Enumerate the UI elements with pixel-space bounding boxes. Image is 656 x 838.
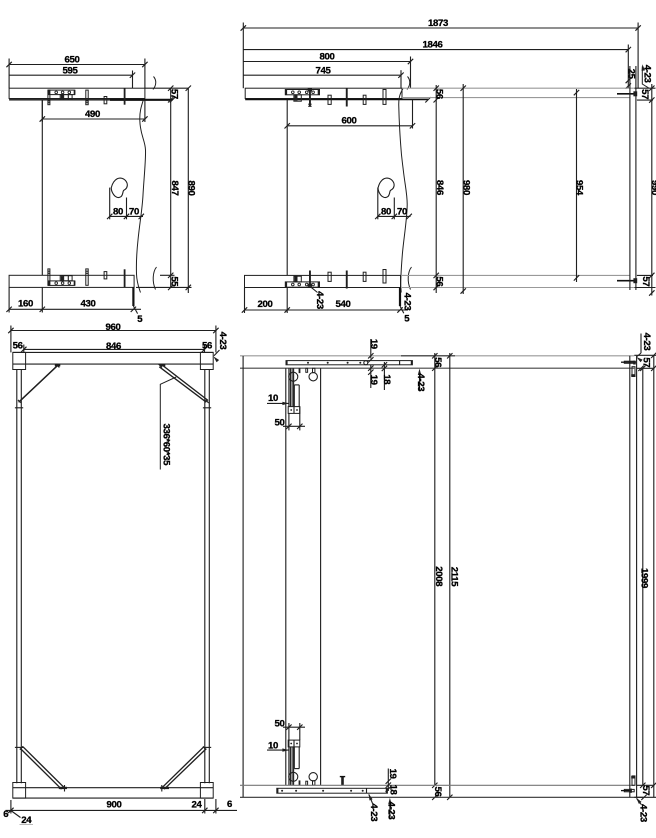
svg-text:25: 25 [626, 69, 637, 80]
svg-text:847: 847 [169, 181, 180, 196]
svg-text:430: 430 [81, 298, 96, 309]
svg-text:2115: 2115 [448, 567, 459, 587]
svg-text:57: 57 [639, 89, 650, 99]
svg-text:50: 50 [275, 719, 285, 730]
svg-text:160: 160 [18, 298, 33, 309]
svg-text:4-23: 4-23 [368, 803, 379, 821]
svg-text:19: 19 [368, 339, 379, 349]
svg-text:57: 57 [168, 89, 179, 99]
svg-text:6: 6 [227, 799, 232, 810]
svg-text:56: 56 [13, 341, 23, 352]
svg-text:846: 846 [106, 341, 121, 352]
svg-text:70: 70 [397, 207, 407, 218]
svg-text:4-23: 4-23 [641, 333, 652, 351]
svg-text:56: 56 [202, 341, 212, 352]
svg-text:18: 18 [388, 785, 399, 796]
svg-text:19: 19 [368, 375, 379, 385]
svg-text:990: 990 [649, 180, 656, 195]
svg-text:19: 19 [387, 769, 398, 779]
svg-text:490: 490 [85, 109, 100, 120]
svg-text:600: 600 [342, 116, 357, 127]
svg-text:540: 540 [336, 299, 351, 310]
svg-text:70: 70 [129, 207, 139, 218]
svg-text:890: 890 [186, 181, 197, 196]
svg-text:4-23: 4-23 [641, 65, 652, 83]
svg-text:954: 954 [574, 180, 585, 196]
svg-text:56: 56 [432, 357, 443, 367]
svg-text:336*60*35: 336*60*35 [161, 423, 172, 466]
svg-text:57: 57 [640, 357, 651, 367]
svg-text:4-23: 4-23 [402, 293, 413, 311]
svg-text:80: 80 [381, 207, 391, 218]
svg-text:10: 10 [268, 741, 278, 752]
svg-text:56: 56 [434, 89, 445, 99]
svg-text:4-23: 4-23 [217, 332, 228, 350]
svg-text:980: 980 [460, 180, 471, 195]
svg-text:50: 50 [275, 417, 285, 428]
svg-text:1873: 1873 [428, 18, 448, 29]
svg-text:18: 18 [381, 374, 392, 385]
svg-text:56: 56 [432, 787, 443, 797]
svg-text:6: 6 [3, 809, 8, 820]
svg-text:745: 745 [316, 65, 332, 76]
svg-text:55: 55 [168, 276, 179, 287]
svg-text:4-23: 4-23 [415, 373, 426, 391]
svg-text:800: 800 [320, 52, 335, 63]
svg-text:10: 10 [268, 393, 278, 404]
svg-text:1999: 1999 [638, 568, 649, 588]
svg-text:57: 57 [640, 276, 651, 286]
svg-text:4-23: 4-23 [638, 804, 649, 822]
svg-text:80: 80 [113, 207, 123, 218]
svg-text:2008: 2008 [433, 566, 444, 587]
svg-text:650: 650 [65, 55, 80, 66]
svg-text:1846: 1846 [423, 40, 443, 51]
svg-text:846: 846 [434, 180, 445, 195]
svg-text:56: 56 [434, 276, 445, 286]
svg-text:900: 900 [107, 800, 122, 811]
svg-text:200: 200 [258, 299, 273, 310]
svg-text:24: 24 [192, 800, 203, 811]
svg-text:57: 57 [640, 785, 651, 795]
svg-text:595: 595 [63, 66, 79, 77]
svg-text:4-23: 4-23 [314, 291, 325, 309]
svg-text:960: 960 [106, 322, 121, 333]
svg-text:4-23: 4-23 [385, 802, 396, 820]
